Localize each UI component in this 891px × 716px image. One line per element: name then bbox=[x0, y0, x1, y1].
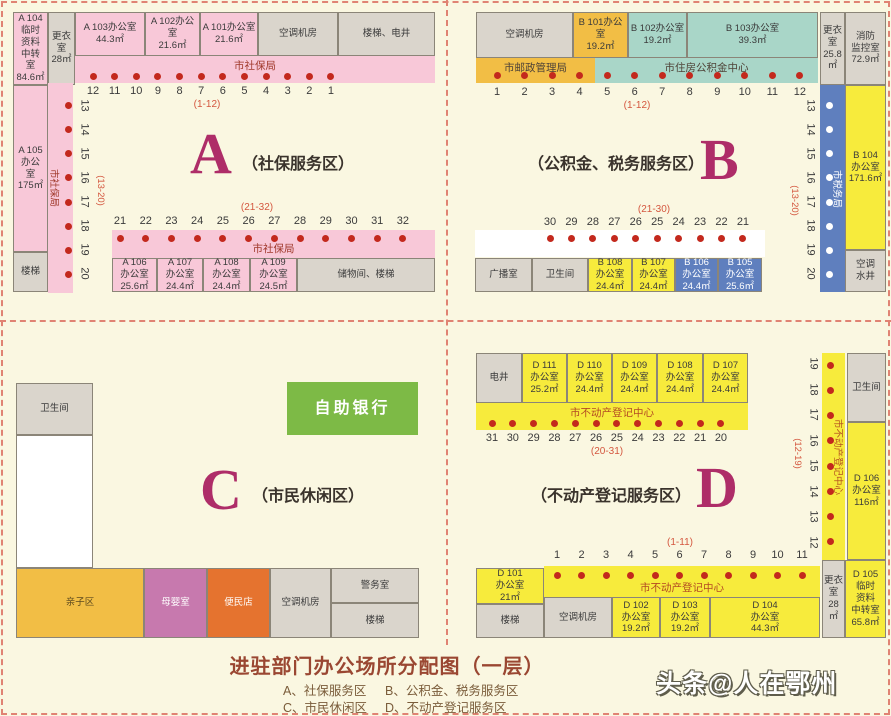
seat-numbers-b-right: 1314151617181920 bbox=[803, 99, 817, 280]
band-d-bottom-dots bbox=[550, 571, 809, 579]
room-b-broadcast: 广播室 bbox=[475, 258, 532, 292]
room-d108: D 108 办公室 24.4㎡ bbox=[657, 353, 703, 403]
seat-numbers-d-right: 1918171615141312 bbox=[806, 357, 820, 549]
room-b-ac: 空调机房 bbox=[476, 12, 573, 58]
self-bank: 自助银行 bbox=[287, 382, 418, 435]
quadrant-divider-vertical bbox=[446, 0, 448, 645]
room-a108: A 108 办公室 24.4㎡ bbox=[203, 258, 250, 292]
room-d-shaft: 电井 bbox=[476, 353, 522, 403]
seat-numbers-a-top: 121110987654321 bbox=[86, 85, 338, 97]
room-a101: A 101办公室 21.6㎡ bbox=[200, 12, 258, 56]
band-d-bottom-label: 市不动产登记中心 bbox=[544, 580, 820, 595]
room-a-stairs-left: 楼梯 bbox=[13, 252, 48, 292]
zone-c-letter: C bbox=[200, 461, 242, 519]
room-c-stairs: 楼梯 bbox=[331, 603, 419, 638]
seat-numbers-d-bottom: 1234567891011 bbox=[550, 549, 809, 561]
room-d109: D 109 办公室 24.4㎡ bbox=[612, 353, 657, 403]
zone-d-letter: D bbox=[696, 459, 738, 517]
police-room: 警务室 bbox=[331, 568, 419, 603]
range-b-top: (1-12) bbox=[587, 100, 687, 111]
room-a103: A 103办公室 44.3㎡ bbox=[75, 12, 145, 56]
room-b102: B 102办公室 19.2㎡ bbox=[628, 12, 687, 58]
room-b104: B 104 办公室 171.6㎡ bbox=[845, 85, 886, 250]
room-c-empty bbox=[16, 435, 93, 568]
zone-c-title: （市民休闲区） bbox=[252, 482, 364, 506]
convenience-store: 便民店 bbox=[207, 568, 270, 638]
room-b107: B 107 办公室 24.4㎡ bbox=[632, 258, 675, 292]
zone-b-title: （公积金、税务服务区） bbox=[528, 150, 704, 174]
room-d111: D 111 办公室 25.2㎡ bbox=[522, 353, 567, 403]
band-b-top-dots bbox=[490, 71, 807, 79]
room-b106: B 106 办公室 24.4㎡ bbox=[675, 258, 718, 292]
range-a-bottom: (21-32) bbox=[207, 202, 307, 213]
kids-area: 亲子区 bbox=[16, 568, 144, 638]
seat-numbers-b-top: 123456789101112 bbox=[490, 86, 807, 98]
room-b-fire-control: 消防 监控室 72.9㎡ bbox=[845, 12, 886, 85]
range-b-bottom: (21-30) bbox=[604, 204, 704, 215]
room-b105: B 105 办公室 25.6㎡ bbox=[718, 258, 762, 292]
room-a105: A 105 办公 室 175㎡ bbox=[13, 85, 48, 252]
room-c-ac: 空调机房 bbox=[270, 568, 331, 638]
room-b101: B 101办公室 19.2㎡ bbox=[573, 12, 628, 58]
room-b-toilet: 卫生间 bbox=[532, 258, 588, 292]
seat-numbers-a-bottom: 212223242526272829303132 bbox=[113, 215, 410, 227]
room-d-stairs: 楼梯 bbox=[476, 604, 544, 638]
room-d107: D 107 办公室 24.4㎡ bbox=[703, 353, 748, 403]
range-d-right: (12-19) bbox=[790, 408, 804, 498]
zone-b-letter: B bbox=[700, 131, 739, 189]
room-a-storage-stairs: 储物间、楼梯 bbox=[297, 258, 435, 292]
room-d101: D 101 办公室 21㎡ bbox=[476, 568, 544, 604]
range-b-right: (13-20) bbox=[787, 155, 801, 245]
room-d-ac: 空调机房 bbox=[544, 597, 612, 638]
band-a-bottom-label: 市社保局 bbox=[112, 241, 435, 256]
room-d105: D 105 临时 资料 中转室 65.8㎡ bbox=[845, 560, 886, 638]
band-a-top-label: 市社保局 bbox=[75, 56, 435, 73]
zone-a-letter: A bbox=[190, 125, 232, 183]
band-b-tax-dots bbox=[823, 101, 835, 279]
floor-plan-canvas: A 104 临时 资料 中转 室 84.6㎡ 更衣 室 28㎡ A 103办公室… bbox=[0, 0, 891, 716]
zone-d-title: （不动产登记服务区） bbox=[531, 482, 691, 506]
band-b-bottom-dots bbox=[543, 234, 750, 242]
room-c-toilet: 卫生间 bbox=[16, 383, 93, 435]
room-a-dressing: 更衣 室 28㎡ bbox=[48, 12, 75, 85]
room-d110: D 110 办公室 24.4㎡ bbox=[567, 353, 612, 403]
room-a-ac: 空调机房 bbox=[258, 12, 338, 56]
room-a-stairs-shaft: 楼梯、电井 bbox=[338, 12, 435, 56]
band-a-left-label: 市社保局 bbox=[48, 83, 62, 293]
seat-numbers-a-left: 1314151617181920 bbox=[77, 99, 91, 280]
room-b103: B 103办公室 39.3㎡ bbox=[687, 12, 818, 58]
range-d-top: (20-31) bbox=[557, 446, 657, 457]
room-a107: A 107 办公室 24.4㎡ bbox=[157, 258, 203, 292]
room-d104: D 104 办公室 44.3㎡ bbox=[710, 597, 820, 638]
room-d-dressing: 更衣 室 28㎡ bbox=[822, 560, 845, 638]
room-b108: B 108 办公室 24.4㎡ bbox=[588, 258, 632, 292]
room-d-toilet: 卫生间 bbox=[847, 353, 886, 422]
band-a-top-dots bbox=[86, 72, 338, 80]
room-d106: D 106 办公室 116㎡ bbox=[847, 422, 886, 560]
band-d-top-dots bbox=[485, 419, 728, 427]
room-b-dressing: 更衣 室 25.8㎡ bbox=[820, 12, 845, 85]
nursing-room: 母婴室 bbox=[144, 568, 207, 638]
band-a-bottom-dots bbox=[113, 234, 410, 242]
room-d102: D 102 办公室 19.2㎡ bbox=[612, 597, 660, 638]
watermark: 头条@人在鄂州 bbox=[656, 664, 837, 700]
legend-zone-c: C、市民休闲区 bbox=[283, 697, 367, 716]
seat-numbers-d-top: 313029282726252423222120 bbox=[485, 432, 728, 444]
room-a109: A 109 办公室 24.5㎡ bbox=[250, 258, 297, 292]
room-a104: A 104 临时 资料 中转 室 84.6㎡ bbox=[13, 12, 48, 85]
room-a106: A 106 办公室 25.6㎡ bbox=[112, 258, 157, 292]
band-d-top-label: 市不动产登记中心 bbox=[476, 403, 748, 420]
zone-a-title: （社保服务区） bbox=[242, 150, 354, 174]
room-d103: D 103 办公室 19.2㎡ bbox=[660, 597, 710, 638]
range-d-bottom: (1-11) bbox=[630, 537, 730, 548]
band-d-right-dots bbox=[824, 361, 836, 546]
seat-numbers-b-bottom: 30292827262524232221 bbox=[543, 216, 750, 228]
band-a-left-dots bbox=[62, 101, 74, 279]
room-a102: A 102办公室 21.6㎡ bbox=[145, 12, 200, 56]
range-a-top: (1-12) bbox=[157, 99, 257, 110]
legend-zone-d: D、不动产登记服务区 bbox=[385, 697, 507, 716]
room-b-ac-well: 空调 水井 bbox=[845, 250, 886, 292]
range-a-left: (13-20) bbox=[93, 150, 107, 230]
page-title: 进驻部门办公场所分配图（一层） bbox=[187, 650, 587, 679]
